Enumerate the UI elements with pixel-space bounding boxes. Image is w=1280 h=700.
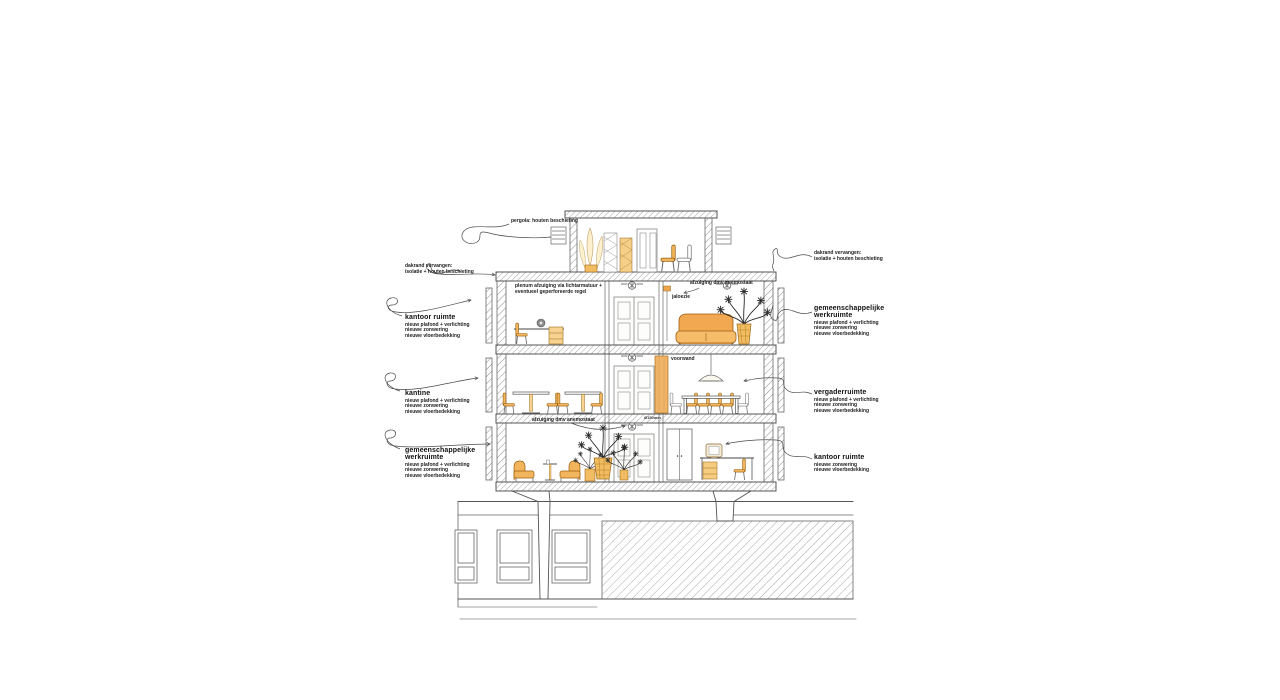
- label-shared-bottom-left: gemeenschappelijke werkruimte nieuw plaf…: [405, 447, 510, 480]
- room-title: gemeenschappelijke werkruimte: [405, 447, 510, 461]
- roof-note-left: dakrand vervangen: isolatie + houten bes…: [405, 264, 474, 275]
- pergola-label: pergola: houten beschieting: [511, 219, 578, 225]
- label-office-top-left: kantoor ruimte nieuw plafond + verlichti…: [405, 314, 470, 340]
- label-meeting: vergaderruimte nieuw plafond + verlichti…: [814, 389, 879, 415]
- room-title: vergaderruimte: [814, 389, 879, 396]
- extract-top-label: afzuiging dmv anemostaat: [690, 281, 753, 287]
- room-title: kantoor ruimte: [405, 314, 470, 321]
- room-note: nieuwe vloerbedekking: [814, 409, 879, 415]
- front-wall-label: voorwand: [671, 357, 695, 363]
- label-office-bottom-right: kantoor ruimte nieuwe zonwering nieuwe v…: [814, 454, 869, 474]
- room-note: nieuwe vloerbedekking: [405, 474, 510, 480]
- room-title: kantine: [405, 390, 470, 397]
- roof-note-right: dakrand vervangen: isolatie + houten bes…: [814, 251, 883, 262]
- duct-size-label: Ø150mm: [644, 415, 661, 420]
- room-note: nieuwe vloerbedekking: [814, 468, 869, 474]
- extract-bottom-label: afzuiging dmv anemostaat: [532, 418, 595, 424]
- annotation-layer: pergola: houten beschieting dakrand verv…: [0, 0, 1280, 700]
- room-note: nieuwe vloerbedekking: [405, 410, 470, 416]
- label-canteen: kantine nieuw plafond + verlichting nieu…: [405, 390, 470, 416]
- label-shared-top-right: gemeenschappelijke werkruimte nieuw plaf…: [814, 305, 919, 338]
- room-note: nieuwe vloerbedekking: [405, 334, 470, 340]
- blind-label: jaloezie: [672, 295, 690, 301]
- plenum-note: plenum afzuiging via lichtarmatuur + eve…: [515, 284, 630, 295]
- section-drawing-page: pergola: houten beschieting dakrand verv…: [0, 0, 1280, 700]
- room-title: kantoor ruimte: [814, 454, 869, 461]
- room-title: gemeenschappelijke werkruimte: [814, 305, 919, 319]
- room-note: nieuwe vloerbedekking: [814, 332, 919, 338]
